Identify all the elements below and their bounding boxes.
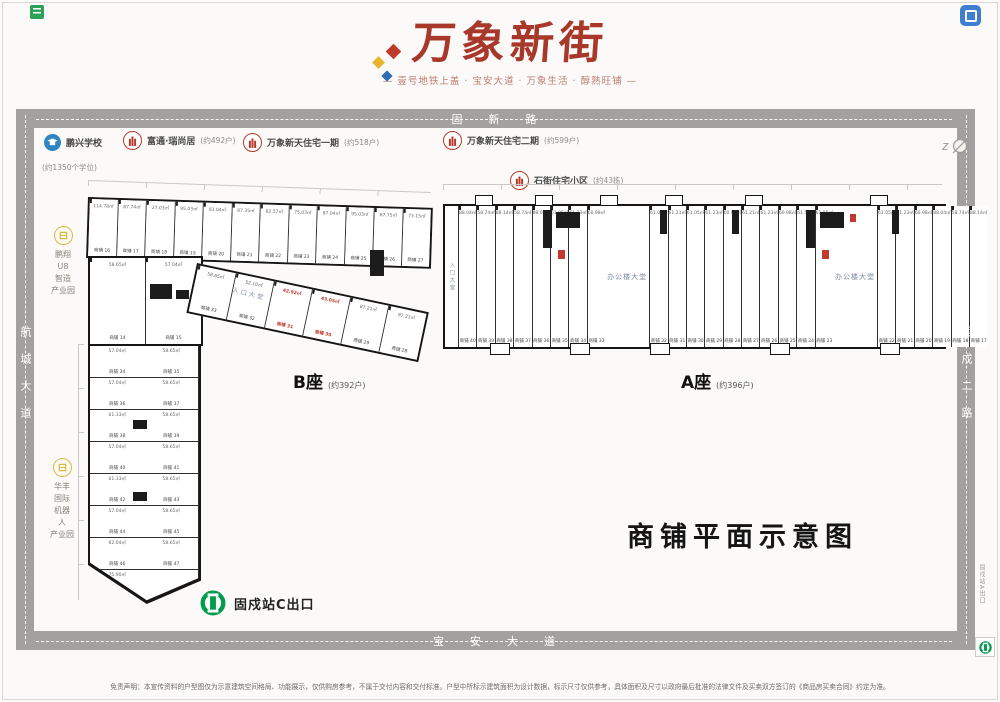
shop-cell: 60.98㎡ 商铺 20 xyxy=(915,206,933,347)
shop-cell: 57.04㎡ 商铺 40 xyxy=(90,442,145,474)
shop-number: 商铺 20 xyxy=(915,338,931,344)
shop-number: 商铺 24 xyxy=(798,338,814,344)
shop-number: 商铺 28 xyxy=(724,338,740,344)
shop-cell xyxy=(145,570,200,602)
shop-number: 商铺 19 xyxy=(934,338,950,344)
b-block-name: B座 xyxy=(293,368,323,393)
entrance-porch xyxy=(490,343,510,355)
shop-number: 商铺 28 xyxy=(391,345,408,354)
shop-cell: 82.57㎡ 商铺 22 xyxy=(259,204,289,262)
shop-cell: 75.03㎡ 商铺 23 xyxy=(288,205,318,263)
shop-cell: 58.65㎡ 商铺 35 xyxy=(145,346,200,378)
shop-area: 58.74㎡ xyxy=(477,210,494,216)
shop-area: 88.04㎡ xyxy=(933,210,950,216)
shop-cell: 61.23㎡ 商铺 31 xyxy=(669,206,687,347)
shop-cell: 57.04㎡ 商铺 44 xyxy=(90,506,145,538)
legend-wanxiang2-name: 万象新天住宅二期 xyxy=(467,134,539,147)
entrance-porch xyxy=(650,343,670,355)
road-guxin-label: 固新路 xyxy=(30,109,958,128)
shop-number: 商铺 33 xyxy=(200,305,217,314)
shop-area: 73.15㎡ xyxy=(408,213,426,220)
shop-area: 95.03㎡ xyxy=(351,211,369,218)
shop-number: 商铺 47 xyxy=(163,561,179,567)
legend-futong-detail: (约492户) xyxy=(200,135,235,146)
b-mid-row: 58.65㎡ 商铺 33 52.10㎡ 商铺 32 42.92㎡ 商铺 31 4… xyxy=(186,263,428,362)
shop-area: 61.05㎡ xyxy=(687,210,704,216)
stair-core xyxy=(660,210,667,234)
shop-number: 商铺 37 xyxy=(515,338,531,344)
brand-tagline: — 壹号地铁上盖 · 宝安大道 · 万象生活 · 醇熟旺铺 — xyxy=(360,73,660,87)
b-left-cells: 57.04㎡ 商铺 34 58.65㎡ 商铺 35 57.04㎡ 商铺 36 5… xyxy=(90,346,199,602)
shop-cell: 93.04㎡ 商铺 20 xyxy=(202,203,232,261)
shop-area: 75.03㎡ xyxy=(294,209,312,216)
a-entry-lobby-label: 入口大堂 xyxy=(445,206,459,347)
shop-area: 57.04㎡ xyxy=(109,444,126,450)
legend-school-detail: (约1350个学位) xyxy=(42,162,97,173)
shop-number: 商铺 30 xyxy=(314,329,332,338)
shop-area: 87.35㎡ xyxy=(237,208,255,215)
metro-logo-small-icon xyxy=(975,637,995,657)
brand-logo: 万象新街 xyxy=(358,20,661,68)
shop-number: 商铺 14 xyxy=(109,335,125,341)
shop-number: 商铺 29 xyxy=(706,338,722,344)
shop-number: 商铺 17 xyxy=(122,248,138,255)
shop-number: 商铺 41 xyxy=(163,465,179,471)
building-icon xyxy=(123,131,142,150)
dimension-line-b-left xyxy=(78,344,84,600)
shop-cell: 61.23㎡ 商铺 26 xyxy=(760,206,778,347)
metro-exit-a-label: 固戍站A出口 xyxy=(977,564,986,604)
entrance-porch xyxy=(475,195,493,206)
shop-area: 58.65㎡ xyxy=(163,476,180,482)
shop-area: 61.33㎡ xyxy=(109,476,126,482)
legend-wanxiang-2: 万象新天住宅二期 (约599户) xyxy=(443,131,579,150)
shop-cell: 61.33㎡ 商铺 42 xyxy=(90,474,145,506)
shop-area: 43.05㎡ xyxy=(320,296,340,306)
shop-number: 商铺 35 xyxy=(163,369,179,375)
road-hangcheng-avenue: 航城大道 xyxy=(16,109,34,650)
shop-cell: 58.65㎡ 商铺 37 xyxy=(145,378,200,410)
shop-cell: 58.65㎡ 商铺 41 xyxy=(145,442,200,474)
shop-cell: 58.74㎡ 商铺 37 xyxy=(514,206,532,347)
shop-area: 60.98㎡ xyxy=(588,210,605,216)
shop-area: 88.14㎡ xyxy=(496,210,513,216)
shop-area: 87.21㎡ xyxy=(397,312,415,321)
shop-number: 商铺 38 xyxy=(109,433,125,439)
shop-number: 商铺 46 xyxy=(109,561,125,567)
shop-area: 61.21㎡ xyxy=(742,210,759,216)
a-block-label: A座 (约396户) xyxy=(681,368,754,393)
shop-number: 商铺 44 xyxy=(109,529,125,535)
entrance-porch xyxy=(745,195,763,206)
shop-number: 商铺 24 xyxy=(322,254,338,261)
shop-cell: 73.15㎡ 商铺 27 xyxy=(401,209,430,267)
park-icon xyxy=(53,458,72,477)
legend-futong: 富通·瑞尚居 (约492户) xyxy=(123,131,236,150)
shop-cell: 87.35㎡ 商铺 21 xyxy=(231,204,261,262)
b-left-wing: 57.04㎡ 商铺 34 58.65㎡ 商铺 35 57.04㎡ 商铺 36 5… xyxy=(88,344,201,604)
shop-area: 57.04㎡ xyxy=(109,380,126,386)
stair-core xyxy=(732,210,739,234)
shop-number: 商铺 34 xyxy=(109,369,125,375)
a-block: 入口大堂 88.04㎡ 商铺 40 58.74㎡ 商铺 39 88.14㎡ 商铺… xyxy=(443,204,946,349)
shop-area: 62.04㎡ xyxy=(109,540,126,546)
shop-cell: 27.03㎡ 商铺 18 xyxy=(145,201,175,259)
shop-cell: 75.90㎡ 商铺 48 xyxy=(90,570,145,602)
metro-glyph-icon xyxy=(979,641,992,654)
shop-number: 商铺 36 xyxy=(533,338,549,344)
building-icon xyxy=(243,133,262,152)
shop-area: 58.65㎡ xyxy=(163,348,180,354)
shop-area: 93.04㎡ xyxy=(209,207,227,214)
shop-cell: 88.14㎡ 商铺 38 xyxy=(496,206,514,347)
park-line: 鹏翔 xyxy=(40,249,86,261)
shop-area: 87.04㎡ xyxy=(323,210,341,217)
shop-cell: 60.98㎡ 商铺 33 xyxy=(588,206,605,347)
shop-area: 58.65㎡ xyxy=(163,540,180,546)
road-hangcheng-label: 航城大道 xyxy=(16,109,34,650)
shop-area: 61.23㎡ xyxy=(760,210,777,216)
brand-block: 万象新街 — 壹号地铁上盖 · 宝安大道 · 万象生活 · 醇熟旺铺 — xyxy=(360,20,660,87)
shop-number: 商铺 36 xyxy=(109,401,125,407)
b-block-count: (约392户) xyxy=(328,380,366,391)
shop-area: 88.04㎡ xyxy=(459,210,476,216)
park-line: 产业园 xyxy=(40,285,86,297)
shop-area: 61.33㎡ xyxy=(109,412,126,418)
shop-area: 58.65㎡ xyxy=(163,380,180,386)
elevator-red-mark xyxy=(558,250,565,259)
shop-cell: 87.21㎡ 商铺 28 xyxy=(380,306,427,360)
shop-area: 82.57㎡ xyxy=(266,209,284,216)
shop-cell: 60.98㎡ 商铺 25 xyxy=(779,206,797,347)
shop-number: 商铺 25 xyxy=(350,255,366,262)
shop-cell: 58.65㎡ 商铺 43 xyxy=(145,474,200,506)
shop-cell: 57.04㎡ 商铺 36 xyxy=(90,378,145,410)
disclaimer-text: 免责声明：本宣传资料的户型图仅为示意建筑空间格局、功能展示，仅供购房参考，不属于… xyxy=(20,682,980,692)
shop-cell: 58.65㎡ 商铺 45 xyxy=(145,506,200,538)
plan-title: 商铺平面示意图 xyxy=(627,515,858,554)
shop-cell: 87.74㎡ 商铺 17 xyxy=(117,200,147,258)
shop-number: 商铺 16 xyxy=(94,247,110,254)
stair-core xyxy=(133,420,147,429)
green-badge-icon xyxy=(30,5,44,19)
metro-exit-c: 固戍站C出口 xyxy=(200,590,315,616)
shop-number: 商铺 48 xyxy=(109,593,125,599)
shop-area: 75.90㎡ xyxy=(109,572,126,578)
park-u8: 鹏翔U8智造产业园 xyxy=(40,226,86,297)
shop-number: 商铺 27 xyxy=(743,338,759,344)
legend-school: 鹏兴学校 xyxy=(44,134,102,151)
shop-area: 58.65㎡ xyxy=(109,262,126,268)
shop-number: 商铺 37 xyxy=(163,401,179,407)
entrance-porch xyxy=(535,195,553,206)
road-baoan-label: 宝安大道 xyxy=(30,631,958,650)
stair-core xyxy=(150,284,172,299)
stair-core xyxy=(543,210,552,248)
shop-area: 87.74㎡ xyxy=(123,204,141,211)
legend-wanxiang1-name: 万象新天住宅一期 xyxy=(267,136,339,149)
shop-number: 商铺 22 xyxy=(265,253,281,260)
shop-area: 58.65㎡ xyxy=(207,271,225,280)
school-icon xyxy=(44,134,61,151)
shop-area: 114.78㎡ xyxy=(93,203,113,210)
elevator-red-mark xyxy=(850,214,856,222)
road-gushu2-label: 固戍二路 xyxy=(957,109,975,650)
shop-cell: 88.04㎡ 商铺 40 xyxy=(459,206,477,347)
entrance-porch xyxy=(665,195,683,206)
shop-area: 58.74㎡ xyxy=(514,210,531,216)
legend-wanxiang1-detail: (约518户) xyxy=(344,137,379,148)
shop-area: 61.23㎡ xyxy=(896,210,913,216)
shop-area: 57.04㎡ xyxy=(165,262,182,268)
stair-core xyxy=(892,210,899,234)
shop-cell: 61.05㎡ 商铺 30 xyxy=(687,206,705,347)
shop-number: 商铺 30 xyxy=(688,338,704,344)
dimension-line-a xyxy=(443,184,942,190)
shop-cell: 61.23㎡ 商铺 21 xyxy=(896,206,914,347)
stair-core xyxy=(820,212,844,228)
a-block-count: (约396户) xyxy=(716,380,754,391)
shop-cell: 58.74㎡ 商铺 39 xyxy=(477,206,495,347)
shop-area: 57.04㎡ xyxy=(109,508,126,514)
shop-cell: 87.04㎡ 商铺 24 xyxy=(316,206,346,264)
shop-number: 商铺 40 xyxy=(460,338,476,344)
shop-number: 商铺 29 xyxy=(353,337,370,346)
entrance-porch xyxy=(770,343,790,355)
shop-number: 商铺 23 xyxy=(816,338,832,344)
shop-area: 60.98㎡ xyxy=(779,210,796,216)
shop-number: 商铺 33 xyxy=(588,338,604,344)
shop-cell: 114.78㎡ 商铺 16 xyxy=(88,199,118,257)
road-guxin: 固新路 xyxy=(30,109,958,128)
stair-core xyxy=(176,290,189,299)
shop-area: 61.23㎡ xyxy=(705,210,722,216)
shop-cell: 61.23㎡ 商铺 29 xyxy=(705,206,723,347)
shop-area: 57.04㎡ xyxy=(109,348,126,354)
shop-area: 42.92㎡ xyxy=(282,288,302,298)
shop-number: 商铺 40 xyxy=(109,465,125,471)
shop-number: 商铺 27 xyxy=(407,257,423,264)
stair-core xyxy=(370,250,384,276)
shop-number: 商铺 39 xyxy=(163,433,179,439)
shop-cell: 95.03㎡ 商铺 19 xyxy=(174,202,204,260)
shop-area: 67.75㎡ xyxy=(380,212,398,219)
park-line: 智造 xyxy=(40,273,86,285)
shop-number: 商铺 23 xyxy=(293,253,309,260)
shop-number: 商铺 43 xyxy=(163,497,179,503)
road-baoan-avenue: 宝安大道 xyxy=(30,631,958,650)
metro-exit-c-label: 固戍站C出口 xyxy=(234,594,315,613)
shop-area: 58.65㎡ xyxy=(163,508,180,514)
shop-cell: 88.04㎡ 商铺 19 xyxy=(933,206,951,347)
a-block-name: A座 xyxy=(681,368,711,393)
park-line: U8 xyxy=(40,261,86,273)
entrance-porch xyxy=(870,195,888,206)
shop-area: 60.98㎡ xyxy=(915,210,932,216)
legend-school-name: 鹏兴学校 xyxy=(66,136,102,149)
entrance-porch xyxy=(600,195,618,206)
road-gushu-2nd: 固戍二路 xyxy=(957,109,975,650)
shop-number: 商铺 42 xyxy=(109,497,125,503)
shop-area: 87.21㎡ xyxy=(359,304,377,313)
legend-futong-name: 富通·瑞尚居 xyxy=(147,134,195,147)
shop-area: 61.23㎡ xyxy=(669,210,686,216)
shop-number: 商铺 32 xyxy=(238,313,255,322)
shop-number: 商铺 31 xyxy=(669,338,685,344)
b-block-label: B座 (约392户) xyxy=(293,368,365,393)
shop-number: 商铺 31 xyxy=(276,321,294,330)
entrance-porch xyxy=(880,343,900,355)
a-cells-left: 88.04㎡ 商铺 40 58.74㎡ 商铺 39 88.14㎡ 商铺 38 5… xyxy=(459,206,605,347)
shop-area: 58.65㎡ xyxy=(163,444,180,450)
legend-wanxiang-1: 万象新天住宅一期 (约518户) xyxy=(243,133,379,152)
shop-cell: 58.65㎡ 商铺 39 xyxy=(145,410,200,442)
shop-cell: 62.04㎡ 商铺 46 xyxy=(90,538,145,570)
building-icon xyxy=(443,131,462,150)
elevator-red-mark xyxy=(822,250,829,259)
shop-area: 95.03㎡ xyxy=(180,206,198,213)
b-connector: 58.65㎡ 商铺 14 57.04㎡ 商铺 15 xyxy=(88,256,203,346)
park-u8-lines: 鹏翔U8智造产业园 xyxy=(40,249,86,297)
shop-number: 商铺 21 xyxy=(236,252,252,259)
shop-area: 27.03㎡ xyxy=(152,205,170,212)
stair-core xyxy=(806,210,815,248)
stair-core xyxy=(556,212,580,228)
park-icon xyxy=(54,226,73,245)
stair-core xyxy=(133,492,147,501)
shop-number: 商铺 35 xyxy=(552,338,568,344)
entrance-porch xyxy=(570,343,590,355)
shop-number: 商铺 20 xyxy=(208,251,224,258)
flyer-page: 固新路 宝安大道 航城大道 固戍二路 固戍站A出口 z 万象新街 — 壹 xyxy=(0,0,1000,702)
shop-number: 商铺 45 xyxy=(163,529,179,535)
shop-cell: 57.04㎡ 商铺 34 xyxy=(90,346,145,378)
shop-cell: 58.65㎡ 商铺 14 xyxy=(90,258,146,344)
dimension-line-b xyxy=(88,180,431,198)
shop-number: 商铺 18 xyxy=(151,249,167,256)
shop-cell: 61.21㎡ 商铺 27 xyxy=(742,206,760,347)
blue-app-logo-icon xyxy=(960,5,981,26)
a-office-lobby-1: 办公楼大堂 xyxy=(605,206,650,347)
shop-cell: 58.65㎡ 商铺 47 xyxy=(145,538,200,570)
shop-number: 商铺 15 xyxy=(165,335,181,341)
legend-wanxiang2-detail: (约599户) xyxy=(544,135,579,146)
metro-logo-icon xyxy=(200,590,226,616)
shop-area: 58.65㎡ xyxy=(163,412,180,418)
compass-z-mark: z xyxy=(942,139,948,153)
